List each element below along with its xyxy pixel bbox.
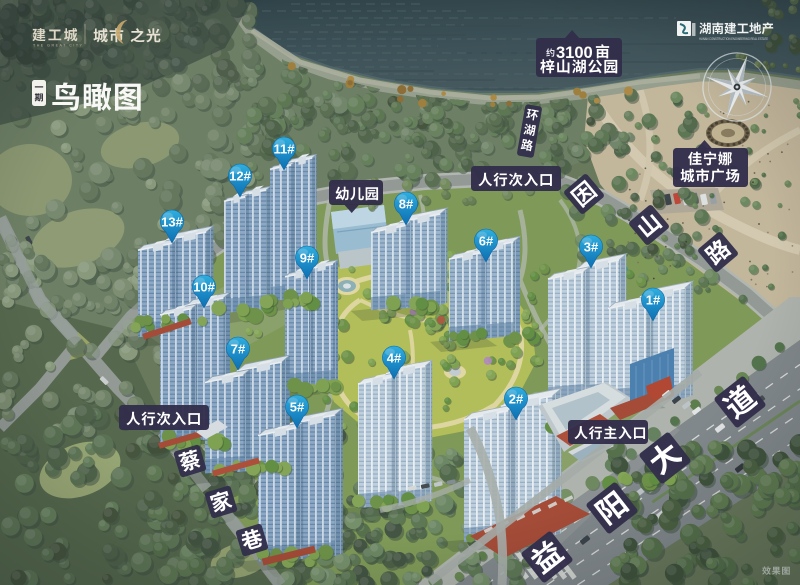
- svg-text:3100: 3100: [556, 44, 593, 62]
- svg-text:12#: 12#: [229, 169, 251, 184]
- svg-text:8#: 8#: [399, 197, 414, 212]
- svg-text:2#: 2#: [509, 392, 524, 407]
- svg-text:9#: 9#: [300, 251, 315, 266]
- svg-text:3#: 3#: [584, 240, 599, 255]
- svg-text:6#: 6#: [479, 234, 494, 249]
- svg-text:1#: 1#: [646, 293, 661, 308]
- svg-text:5#: 5#: [290, 400, 305, 415]
- svg-text:7#: 7#: [231, 342, 246, 357]
- svg-text:10#: 10#: [193, 280, 215, 295]
- svg-text:HUNAN CONSTRUCTION ENGINEERING: HUNAN CONSTRUCTION ENGINEERING REAL ESTA…: [699, 37, 769, 41]
- svg-text:THE GREAT CITY: THE GREAT CITY: [33, 44, 83, 48]
- svg-text:13#: 13#: [161, 215, 183, 230]
- svg-text:4#: 4#: [387, 351, 402, 366]
- svg-text:11#: 11#: [274, 142, 296, 157]
